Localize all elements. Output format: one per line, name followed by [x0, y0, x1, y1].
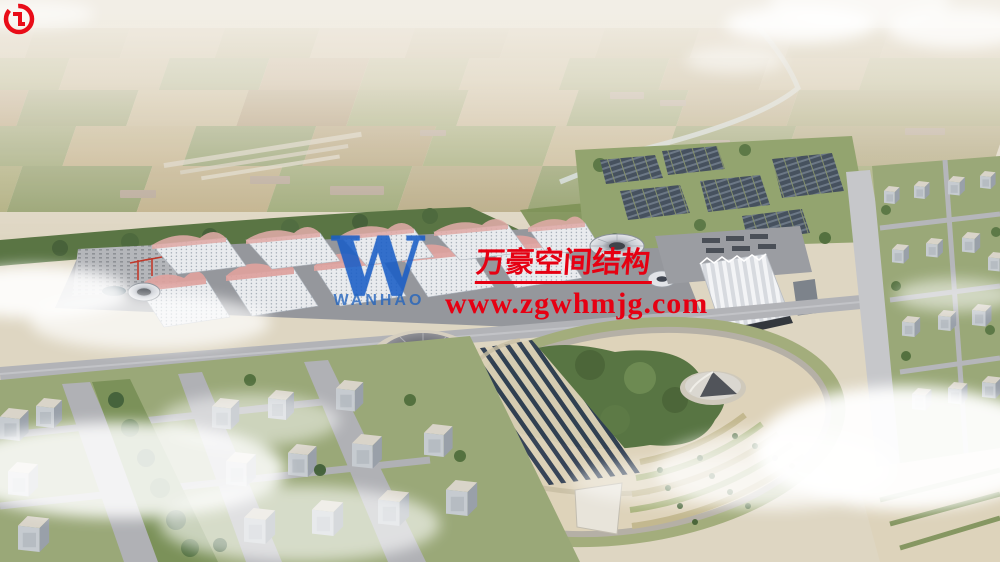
aerial-rendering-exhibition-complex: W WANHAO 万豪空间结构 www.zgwhmjg.com — [0, 0, 1000, 562]
watermark-website: www.zgwhmjg.com — [445, 287, 708, 321]
watermark-logo-wordmark: WANHAO — [327, 292, 431, 310]
logo-emblem-icon — [0, 0, 38, 38]
watermark-company-name: 万豪空间结构 — [475, 247, 655, 284]
glass-cone — [680, 371, 746, 405]
